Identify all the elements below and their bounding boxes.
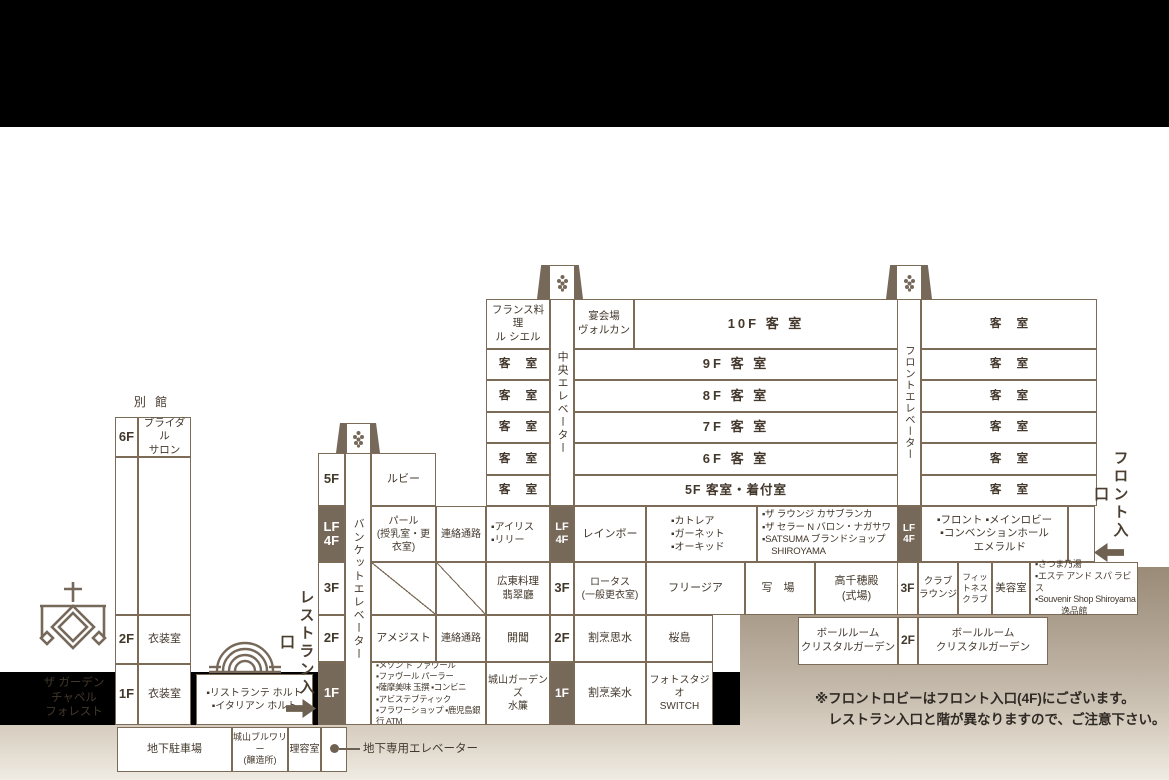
front-elevator-column: フロントエレベーター <box>897 299 921 506</box>
lotus-room-cell: ロータス (一般更衣室) <box>574 562 646 615</box>
floor-7f-rooms-cell: 7F 客 室 <box>574 412 898 443</box>
central-elevator-column: 中央エレベーター <box>550 299 574 506</box>
ballroom-crystal-garden-right-cell: ボールルーム クリスタルガーデン <box>918 617 1048 665</box>
bridal-salon-cell: ブライダル サロン <box>138 417 191 457</box>
rainbow-room-cell: レインボー <box>574 506 646 562</box>
front-lobby-note: ※フロントロビーはフロント入口(4F)にございます。 レストラン入口と階が異なり… <box>815 689 1167 731</box>
banquet-elevator-column: バンケットエレベーター <box>345 453 371 725</box>
restaurant-entrance-label: レストラン入口 <box>283 587 309 699</box>
guest-room-cell: 客 室 <box>921 475 1097 506</box>
guest-room-cell: 客 室 <box>486 443 550 475</box>
freesia-room-cell: フリージア <box>646 562 745 615</box>
center-1f-floor-label: 1F <box>550 662 574 725</box>
floor-6f-rooms-cell: 6F 客 室 <box>574 443 898 475</box>
floor-9f-rooms-cell: 9F 客 室 <box>574 349 898 380</box>
arch-building-icon <box>209 637 281 674</box>
banquet-elevator-crest-icon <box>346 423 371 453</box>
cattleya-garnet-orchid-cell: ▪カトレア ▪ガーネット ▪オーキッド <box>646 506 757 562</box>
beauty-salon-cell: 美容室 <box>992 562 1030 615</box>
floor-8f-rooms-cell: 8F 客 室 <box>574 380 898 412</box>
banquet-3f-empty-cell <box>371 562 436 615</box>
casablanca-lounge-cell: ▪ザ ラウンジ カサブランカ ▪ザ セラー N バロン・ナガサワ ▪SATSUM… <box>757 506 898 562</box>
fitness-club-cell: フィットネス クラブ <box>958 562 992 615</box>
connector-line <box>339 748 360 750</box>
annex-2f-floor-label: 2F <box>115 615 138 664</box>
photo-room-cell: 写 場 <box>745 562 815 615</box>
photo-studio-switch-cell: フォトスタジオ SWITCH <box>646 662 713 725</box>
guest-room-cell: 客 室 <box>921 299 1097 349</box>
connecting-corridor-2f-cell: 連絡通路 <box>436 615 486 662</box>
annex-empty-floor-column <box>115 457 138 615</box>
floor-map-screen: 別 館 6F ブライダル サロン 2F 衣装室 1F 衣装室 ザ ガーデン <box>0 0 1169 780</box>
rakusui-restaurant-cell: 割烹楽水 <box>574 662 646 725</box>
map-canvas: 別 館 6F ブライダル サロン 2F 衣装室 1F 衣装室 ザ ガーデン <box>0 127 1169 672</box>
guest-room-cell: 客 室 <box>921 349 1097 380</box>
connecting-corridor-lf4f-cell: 連絡通路 <box>436 506 486 562</box>
banquet-2f-floor-label: 2F <box>318 615 345 662</box>
le-ciel-restaurant-cell: フランス料理 ル シエル <box>486 299 550 349</box>
banquet-lf4f-floor-label: LF 4F <box>318 506 345 562</box>
vulcan-banquet-hall-cell: 宴会場 ヴォルカン <box>574 299 634 349</box>
front-2f-floor-label: 2F <box>898 617 918 665</box>
annex-6f-floor-label: 6F <box>115 417 138 457</box>
chapel-label: ザ ガーデン チャペル フォレスト <box>18 675 130 721</box>
takachiho-hall-cell: 高千穂殿 (式場) <box>815 562 898 615</box>
guest-room-cell: 客 室 <box>486 475 550 506</box>
iris-lily-cell: ▪アイリス ▪リリー <box>486 506 550 562</box>
front-3f-floor-label: 3F <box>897 562 918 615</box>
center-2f-floor-label: 2F <box>550 615 574 662</box>
kaimon-room-cell: 開聞 <box>486 615 550 662</box>
dressing-room-2f-cell: 衣装室 <box>138 615 191 664</box>
floor-5f-rooms-cell: 5F 客室・着付室 <box>574 475 898 506</box>
banquet-3f-floor-label: 3F <box>318 562 345 615</box>
pearl-room-cell: パール (授乳室・更衣室) <box>371 506 436 562</box>
floor-10f-rooms-cell: 10F 客 室 <box>634 299 898 349</box>
chapel-icon <box>36 580 110 674</box>
annex-empty-room-column <box>138 457 191 615</box>
front-lf4f-floor-label: LF 4F <box>897 506 921 562</box>
guest-room-cell: 客 室 <box>921 443 1097 475</box>
guest-room-cell: 客 室 <box>486 349 550 380</box>
guest-room-cell: 客 室 <box>486 412 550 443</box>
banquet-3f-empty-cell-2 <box>436 562 486 615</box>
guest-room-cell: 客 室 <box>921 412 1097 443</box>
center-lf4f-floor-label: LF 4F <box>550 506 574 562</box>
spa-souvenir-cell: ▪さつま乃湯 ▪エステ アンド スパ ラビス ▪Souvenir Shop Sh… <box>1030 562 1138 615</box>
front-elevator-crest-icon <box>896 265 922 299</box>
ballroom-crystal-garden-left-cell: ボールルーム クリスタルガーデン <box>798 617 898 665</box>
dot-marker-icon <box>330 744 339 753</box>
shisui-restaurant-cell: 割烹思水 <box>574 615 646 662</box>
center-elevator-crest-icon <box>549 265 575 299</box>
dressing-room-1f-cell: 衣装室 <box>138 664 191 725</box>
ruby-room-cell: ルビー <box>371 453 436 506</box>
center-3f-floor-label: 3F <box>550 562 574 615</box>
sakurajima-room-cell: 桜島 <box>646 615 713 662</box>
suiren-gardens-cell: 城山ガーデンズ 水簾 <box>486 662 550 725</box>
shiroyama-brewery-cell: 城山ブルワリー (醸造所) <box>232 727 288 772</box>
amethyst-room-cell: アメジスト <box>371 615 436 662</box>
barber-shop-cell: 理容室 <box>288 727 321 772</box>
banquet-5f-floor-label: 5F <box>318 453 345 506</box>
banquet-1f-shops-cell: ▪メゾン ド ファヴール ▪ファヴール パーラー ▪薩摩美味 玉撰 ▪コンビニ … <box>371 662 486 725</box>
guest-room-cell: 客 室 <box>921 380 1097 412</box>
annex-title: 別 館 <box>110 395 194 411</box>
cantonese-restaurant-cell: 広東料理 翡翠廳 <box>486 562 550 615</box>
guest-room-cell: 客 室 <box>486 380 550 412</box>
front-entrance-label: フロント入口 <box>1096 447 1124 543</box>
club-lounge-cell: クラブ ラウンジ <box>918 562 958 615</box>
basement-elevator-label: 地下専用エレベーター <box>363 740 503 756</box>
banquet-1f-floor-label: 1F <box>318 662 345 725</box>
front-lobby-cell: ▪フロント ▪メインロビー ▪コンベンションホール エメラルド <box>921 506 1068 562</box>
underground-parking-cell: 地下駐車場 <box>117 727 232 772</box>
